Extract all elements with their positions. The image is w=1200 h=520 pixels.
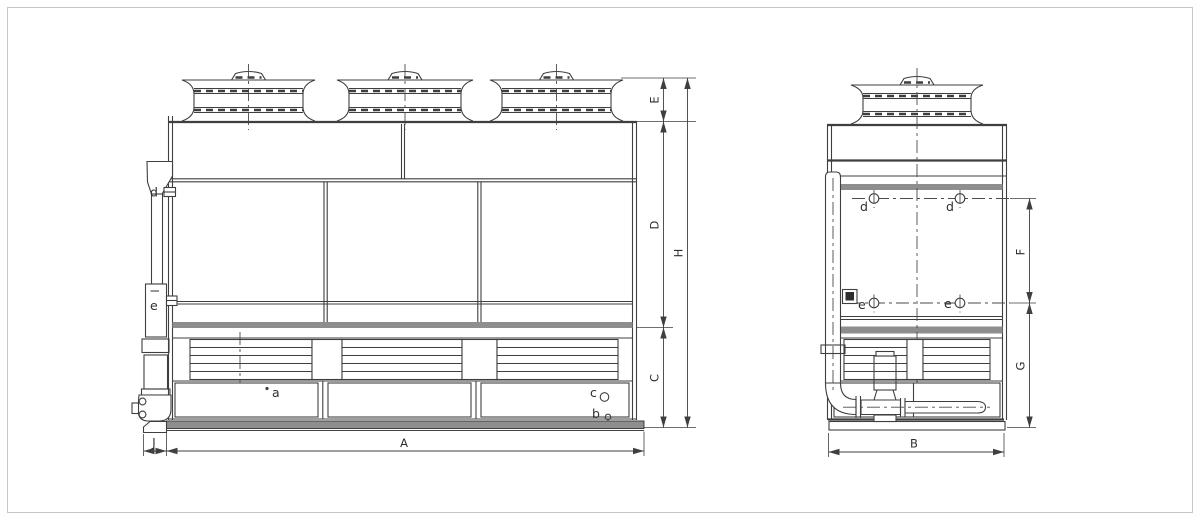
fan-cowl-3 — [490, 64, 623, 130]
port-d-label: d — [150, 185, 158, 200]
port-e-label: e — [150, 298, 158, 313]
louver-group-right — [923, 340, 990, 380]
port-d-label: d — [860, 199, 868, 214]
louver-group-1 — [190, 340, 312, 380]
louver-post — [462, 340, 497, 380]
port-a-marker — [265, 387, 268, 390]
technical-drawing-canvas: a c b d e — [0, 0, 1200, 520]
dim-E-label: E — [648, 96, 662, 103]
basin-front: a c b — [168, 381, 637, 421]
pipe-coupling-front — [142, 339, 169, 353]
dimension-D: D — [648, 122, 664, 328]
basin-panel — [328, 383, 471, 417]
dimension-C: C — [648, 328, 664, 428]
gray-band-front — [173, 322, 633, 328]
dim-F-label: F — [1014, 249, 1028, 256]
louver-band-front — [173, 332, 633, 390]
dim-H-label: H — [672, 249, 686, 258]
pipe-pump-assembly-front: d e — [132, 162, 177, 422]
louver-band-side — [832, 338, 1003, 381]
pump-motor-cap — [876, 352, 894, 357]
side-view: d d e e — [821, 68, 1036, 457]
pump-flange-front — [142, 389, 171, 395]
dim-G-label: G — [1014, 362, 1028, 371]
dim-A-label: A — [400, 436, 408, 450]
fan-cowl-1 — [182, 64, 315, 130]
dim-D-label: D — [648, 220, 662, 229]
dimensions-front-bottom: J A — [144, 432, 645, 457]
pump-bolt — [139, 411, 146, 418]
dimensions-side-right: F G — [1007, 199, 1036, 428]
dim-J-label: J — [151, 436, 155, 450]
dim-B-label: B — [910, 437, 918, 451]
dimension-A: A — [167, 436, 645, 451]
base-side — [829, 422, 1005, 431]
dimension-G: G — [1014, 303, 1030, 428]
port-c-label: c — [590, 385, 597, 400]
base-front — [144, 421, 645, 433]
pump-pedestal — [874, 415, 896, 422]
drawing-page: a c b d e — [0, 0, 1200, 520]
dim-C-label: C — [648, 374, 662, 382]
louver-post — [312, 340, 342, 380]
fan-cowl-2 — [337, 64, 473, 130]
dimension-E: E — [648, 78, 664, 122]
pump-outlet-stub — [132, 403, 139, 414]
louver-group-3 — [497, 340, 618, 380]
louver-group-left — [844, 340, 907, 380]
page-frame — [8, 8, 1193, 513]
port-a-label: a — [272, 385, 280, 400]
riser-pipe-front — [152, 194, 163, 284]
front-view: a c b d e — [132, 64, 696, 456]
dimension-J: J — [144, 436, 167, 452]
louver-post — [907, 340, 923, 380]
dimension-F: F — [1014, 199, 1030, 304]
pump-motor-front — [144, 355, 168, 389]
base-foot-left — [144, 422, 167, 433]
port-b-label: b — [592, 406, 600, 421]
port-d-label: d — [946, 199, 954, 214]
port-e-label: e — [944, 296, 952, 311]
control-box-display — [846, 292, 855, 301]
port-e-label: e — [858, 297, 866, 312]
basin-panel — [175, 383, 318, 417]
dimension-H: H — [672, 78, 688, 428]
louver-group-2 — [342, 340, 462, 380]
dimension-B: B — [829, 433, 1005, 457]
pump-bolt — [139, 398, 146, 405]
